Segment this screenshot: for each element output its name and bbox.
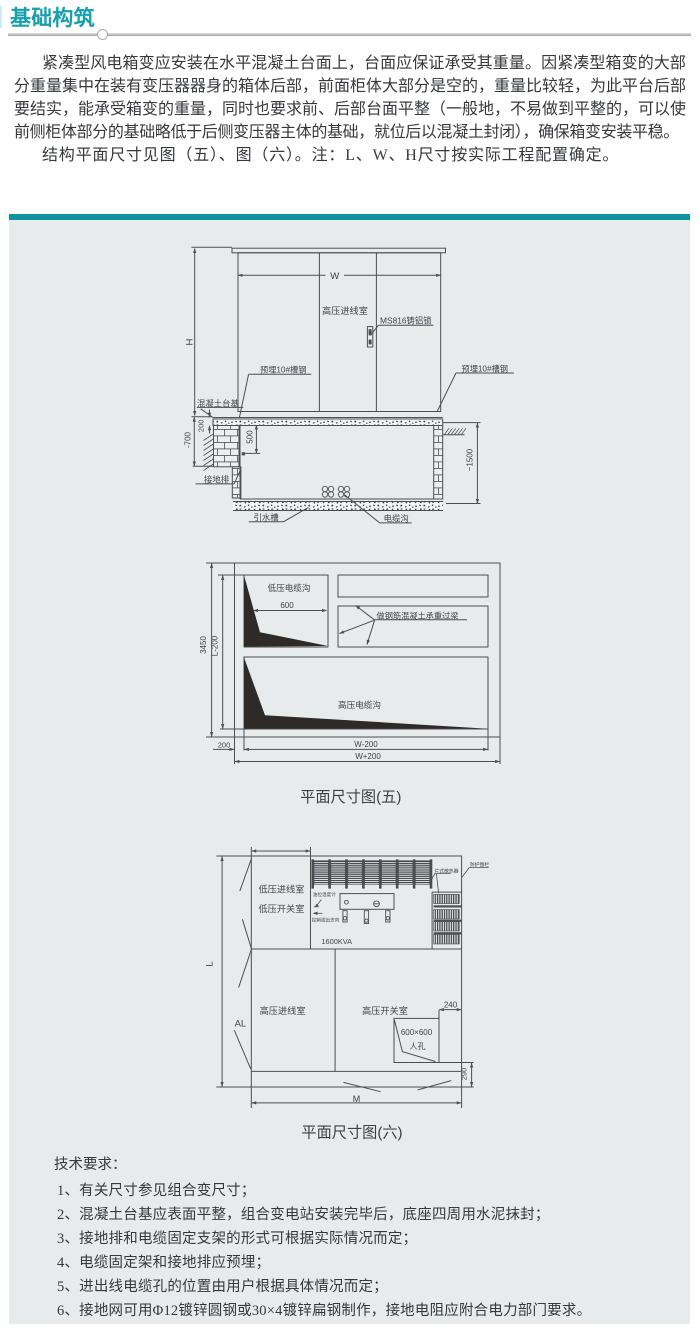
svg-text:平面尺寸图(五): 平面尺寸图(五) [300, 789, 401, 806]
svg-text:L: L [205, 961, 216, 966]
svg-text:控制缆出去向: 控制缆出去向 [312, 916, 340, 923]
svg-text:200: 200 [197, 420, 206, 433]
svg-text:油位温度计: 油位温度计 [313, 891, 336, 898]
svg-text:引水槽: 引水槽 [254, 512, 280, 522]
svg-text:W-200: W-200 [354, 740, 378, 749]
svg-text:-700: -700 [184, 431, 193, 448]
svg-text:W+200: W+200 [355, 752, 381, 761]
svg-text:~1500: ~1500 [465, 448, 474, 471]
svg-text:电缆沟: 电缆沟 [384, 513, 409, 523]
svg-text:片式散热器: 片式散热器 [435, 867, 459, 874]
svg-text:防护围栏: 防护围栏 [470, 861, 489, 868]
svg-text:AL: AL [235, 1019, 247, 1030]
svg-text:人孔: 人孔 [410, 1042, 426, 1051]
svg-text:高压进线室: 高压进线室 [322, 305, 368, 316]
svg-text:高压开关室: 高压开关室 [362, 1005, 408, 1016]
svg-text:做钢筋混凝土承重过梁: 做钢筋混凝土承重过梁 [377, 610, 459, 620]
svg-text:500: 500 [245, 430, 254, 444]
svg-text:M: M [353, 1094, 361, 1104]
svg-text:混凝土台基: 混凝土台基 [197, 398, 239, 408]
svg-text:接地排: 接地排 [204, 475, 230, 485]
svg-text:平面尺寸图(六): 平面尺寸图(六) [301, 1124, 402, 1141]
svg-text:预埋10#槽钢: 预埋10#槽钢 [462, 363, 508, 373]
svg-text:290: 290 [459, 1068, 468, 1081]
svg-text:200: 200 [218, 740, 231, 749]
svg-text:MS816铸铝锁: MS816铸铝锁 [380, 316, 432, 326]
svg-text:预埋10#槽钢: 预埋10#槽钢 [260, 365, 306, 375]
svg-text:L-200: L-200 [210, 635, 219, 656]
svg-text:低压电缆沟: 低压电缆沟 [268, 582, 311, 593]
svg-text:240: 240 [444, 1000, 458, 1009]
svg-text:低压进线室: 低压进线室 [259, 883, 305, 894]
svg-text:高压电缆沟: 高压电缆沟 [338, 699, 381, 710]
svg-text:1600KVA: 1600KVA [321, 937, 352, 946]
svg-text:600: 600 [280, 601, 294, 610]
svg-text:H: H [185, 338, 196, 345]
svg-text:600×600: 600×600 [401, 1028, 433, 1037]
svg-text:低压开关室: 低压开关室 [259, 903, 305, 914]
svg-text:高压进线室: 高压进线室 [260, 1005, 306, 1016]
svg-text:W: W [330, 271, 339, 282]
svg-text:3450: 3450 [199, 636, 208, 654]
